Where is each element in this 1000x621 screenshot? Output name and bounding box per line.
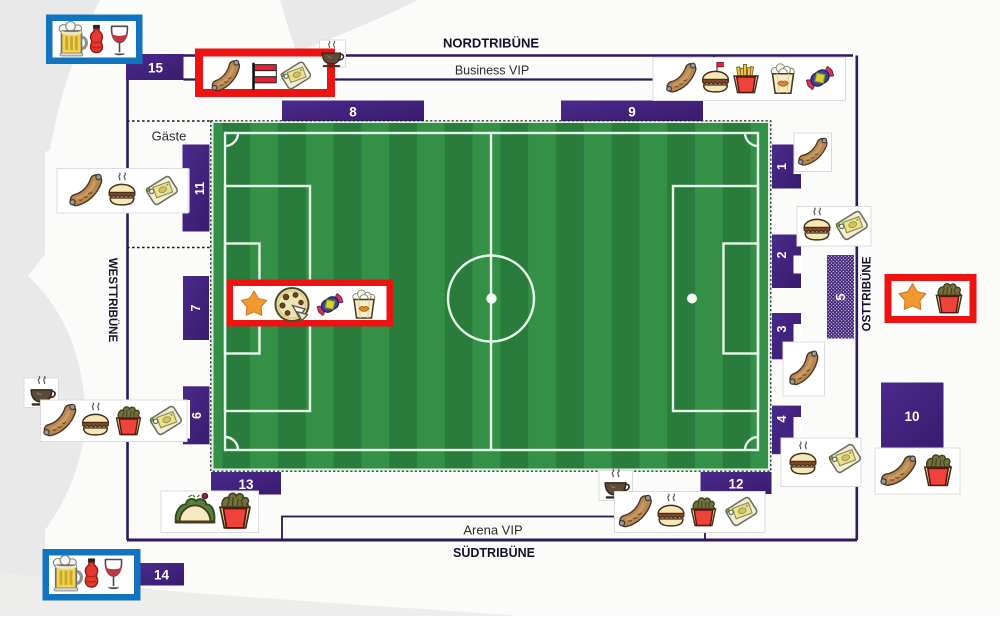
svg-text:14: 14 [154,568,170,583]
svg-text:Business VIP: Business VIP [455,64,529,78]
svg-text:SÜDTRIBÜNE: SÜDTRIBÜNE [453,545,535,560]
svg-text:3: 3 [775,325,789,332]
svg-text:13: 13 [238,477,254,492]
svg-text:12: 12 [728,477,743,492]
svg-text:5: 5 [833,293,848,300]
svg-text:OSTTRIBÜNE: OSTTRIBÜNE [861,256,874,331]
svg-text:9: 9 [628,105,636,120]
svg-text:7: 7 [189,304,203,311]
svg-text:8: 8 [349,105,357,120]
svg-text:15: 15 [148,61,164,76]
svg-text:WESTTRIBÜNE: WESTTRIBÜNE [106,258,119,343]
svg-text:4: 4 [775,415,789,422]
svg-text:Arena VIP: Arena VIP [463,523,522,538]
svg-text:Gäste: Gäste [152,129,187,144]
svg-text:NORDTRIBÜNE: NORDTRIBÜNE [443,36,539,51]
svg-text:1: 1 [775,163,789,170]
svg-text:10: 10 [904,409,919,424]
svg-text:6: 6 [190,412,204,419]
svg-text:2: 2 [775,251,789,258]
svg-text:11: 11 [193,182,207,195]
